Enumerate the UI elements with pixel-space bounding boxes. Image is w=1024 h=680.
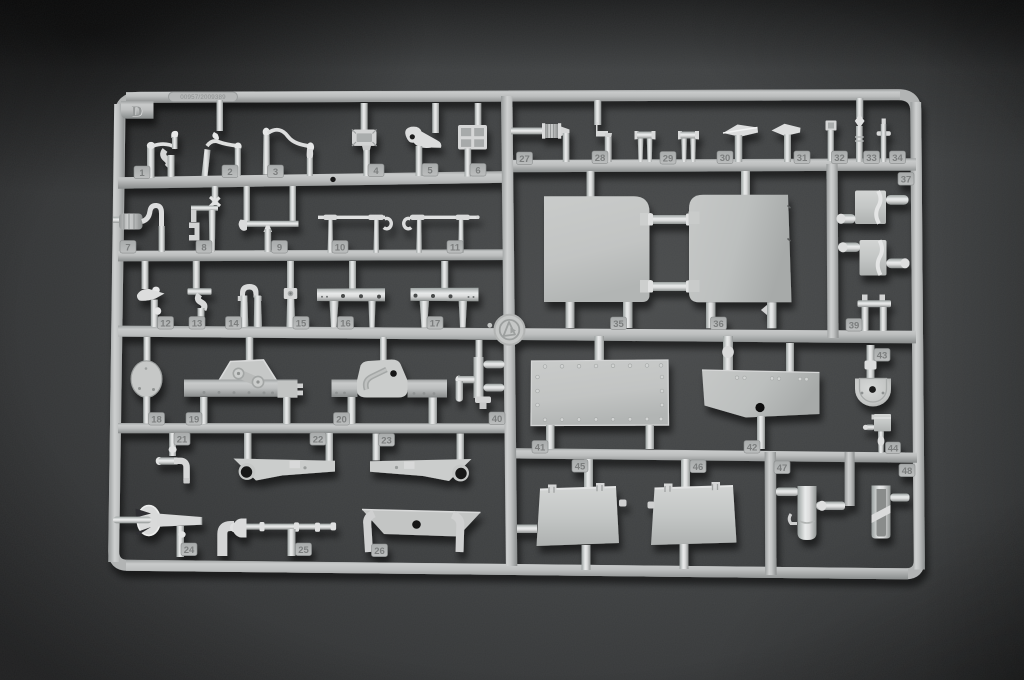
svg-text:28: 28 bbox=[595, 153, 606, 164]
svg-text:46: 46 bbox=[693, 462, 704, 473]
svg-text:44: 44 bbox=[888, 444, 899, 455]
svg-text:11: 11 bbox=[450, 243, 461, 254]
svg-text:15: 15 bbox=[296, 319, 307, 330]
svg-text:9: 9 bbox=[277, 243, 282, 254]
svg-text:17: 17 bbox=[430, 319, 441, 330]
svg-text:1: 1 bbox=[139, 168, 145, 179]
svg-text:36: 36 bbox=[713, 319, 724, 330]
svg-text:D: D bbox=[132, 104, 143, 120]
svg-text:23: 23 bbox=[381, 436, 392, 447]
svg-text:7: 7 bbox=[125, 243, 130, 254]
svg-text:14: 14 bbox=[228, 319, 239, 330]
svg-text:31: 31 bbox=[797, 153, 808, 164]
svg-text:8: 8 bbox=[201, 243, 206, 254]
svg-text:37: 37 bbox=[901, 175, 912, 186]
svg-text:26: 26 bbox=[374, 546, 385, 557]
svg-text:41: 41 bbox=[535, 443, 546, 454]
svg-text:5: 5 bbox=[427, 166, 433, 177]
svg-text:43: 43 bbox=[877, 351, 888, 362]
svg-text:13: 13 bbox=[192, 319, 203, 330]
svg-text:24: 24 bbox=[184, 545, 195, 556]
svg-text:42: 42 bbox=[747, 443, 758, 454]
svg-text:20: 20 bbox=[336, 415, 347, 426]
svg-text:25: 25 bbox=[298, 545, 309, 556]
svg-text:48: 48 bbox=[902, 466, 913, 477]
svg-text:4: 4 bbox=[373, 166, 379, 177]
svg-text:32: 32 bbox=[834, 153, 845, 164]
svg-text:27: 27 bbox=[519, 154, 530, 165]
svg-text:16: 16 bbox=[340, 319, 351, 330]
svg-text:30: 30 bbox=[720, 153, 731, 164]
svg-text:12: 12 bbox=[160, 319, 171, 330]
svg-text:22: 22 bbox=[313, 435, 324, 446]
svg-text:33: 33 bbox=[866, 153, 877, 164]
svg-text:10: 10 bbox=[335, 243, 346, 254]
svg-text:29: 29 bbox=[663, 154, 674, 165]
svg-text:45: 45 bbox=[575, 462, 586, 473]
svg-text:39: 39 bbox=[849, 321, 860, 332]
svg-text:19: 19 bbox=[189, 415, 200, 426]
svg-text:3: 3 bbox=[273, 167, 278, 178]
svg-text:34: 34 bbox=[892, 153, 903, 164]
svg-text:21: 21 bbox=[177, 435, 188, 446]
svg-text:40: 40 bbox=[492, 414, 503, 425]
svg-text:47: 47 bbox=[777, 463, 788, 474]
svg-text:35: 35 bbox=[613, 319, 624, 330]
svg-text:2: 2 bbox=[227, 167, 232, 178]
svg-text:6: 6 bbox=[475, 166, 480, 177]
svg-text:18: 18 bbox=[151, 415, 162, 426]
